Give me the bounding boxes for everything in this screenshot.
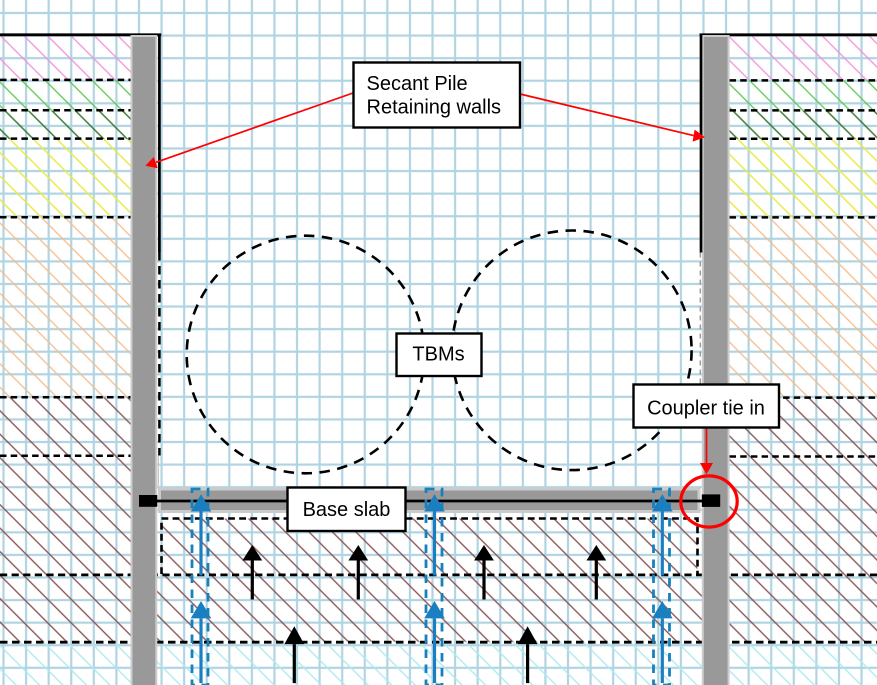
svg-text:TBMs: TBMs <box>412 344 464 366</box>
svg-text:Base slab: Base slab <box>303 499 391 521</box>
svg-text:Coupler tie in: Coupler tie in <box>647 398 765 420</box>
svg-text:Retaining walls: Retaining walls <box>367 97 502 119</box>
svg-text:Secant Pile: Secant Pile <box>367 73 468 95</box>
